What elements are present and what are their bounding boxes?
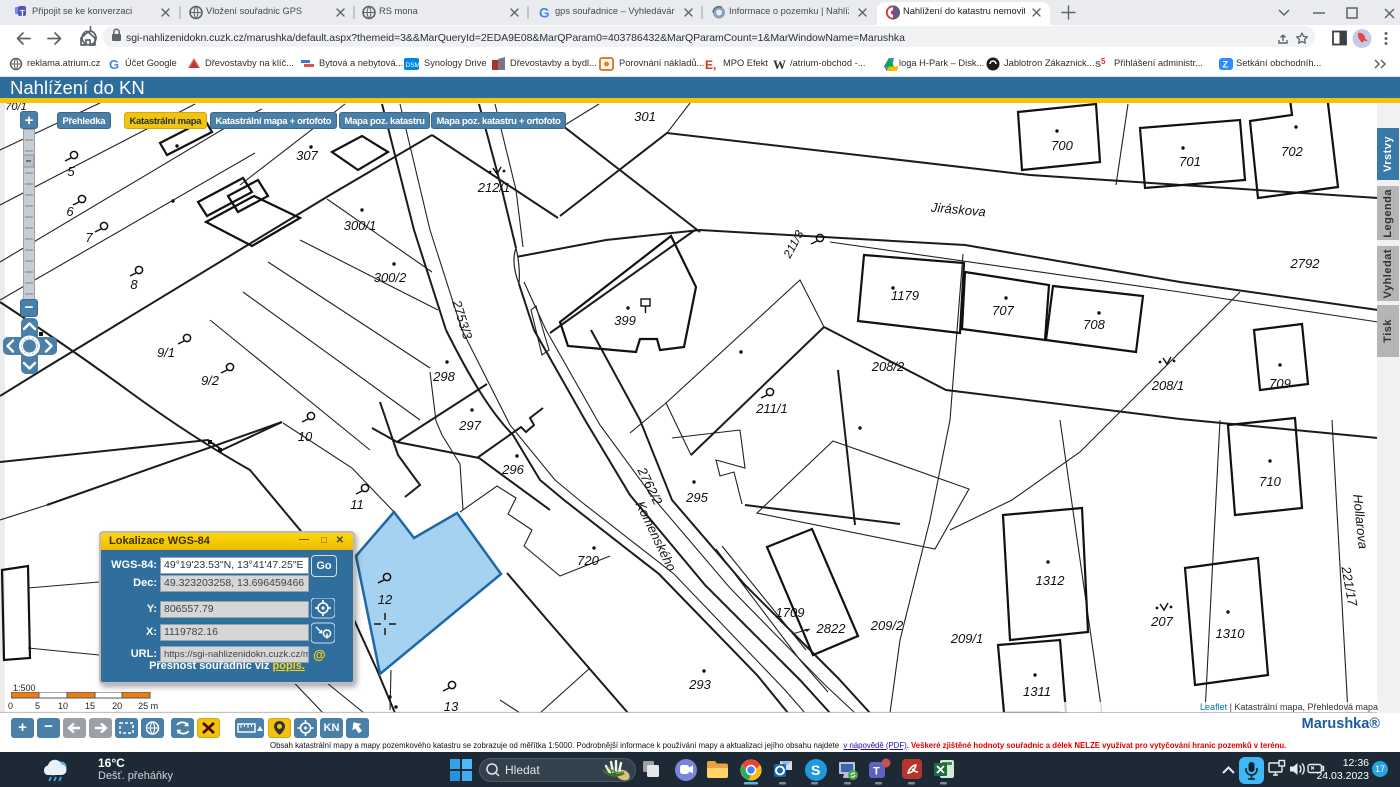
svg-text:6: 6 [66,204,74,219]
svg-text:T: T [20,9,25,18]
svg-text:5: 5 [67,164,75,179]
svg-text:293: 293 [688,677,711,692]
svg-text:307: 307 [296,148,318,163]
svg-text:13: 13 [444,699,459,713]
svg-text:209/2: 209/2 [870,618,904,633]
svg-text:1312: 1312 [1036,573,1066,588]
svg-text:1310: 1310 [1216,626,1246,641]
svg-text:707: 707 [992,303,1014,318]
svg-text:301: 301 [634,109,656,124]
svg-text:Z: Z [1223,60,1229,70]
svg-text:T: T [873,766,880,778]
svg-text:709: 709 [1269,376,1291,391]
svg-text:296: 296 [501,462,524,477]
svg-text:2822: 2822 [816,621,847,636]
svg-text:708: 708 [1083,317,1105,332]
svg-text:1179: 1179 [891,288,919,303]
svg-text:207: 207 [1150,614,1173,629]
svg-text:295: 295 [685,490,708,505]
svg-text:S: S [811,762,820,778]
svg-text:12: 12 [378,592,393,607]
svg-text:300/1: 300/1 [344,218,377,233]
svg-text:G: G [109,57,119,72]
svg-text:209/1: 209/1 [950,631,984,646]
svg-text:720: 720 [577,553,599,568]
svg-text:11: 11 [350,497,364,512]
svg-text:300/2: 300/2 [374,270,407,285]
svg-text:7: 7 [85,230,93,245]
svg-text:10: 10 [298,429,313,444]
svg-text:G: G [539,6,550,21]
svg-text:399: 399 [614,313,636,328]
svg-text:5: 5 [1101,57,1106,66]
svg-text:1311: 1311 [1023,684,1051,699]
svg-text:298: 298 [432,369,455,384]
svg-text:DSM: DSM [406,62,420,69]
svg-text:8: 8 [130,277,138,292]
svg-text:E,: E, [705,58,716,72]
svg-text:700: 700 [1051,138,1073,153]
svg-text:9/1: 9/1 [157,345,175,360]
svg-text:297: 297 [458,418,481,433]
svg-text:701: 701 [1179,154,1201,169]
svg-text:1709: 1709 [776,605,805,620]
svg-text:208/2: 208/2 [871,359,905,374]
svg-text:208/1: 208/1 [1151,378,1185,393]
svg-text:710: 710 [1259,474,1281,489]
svg-text:702: 702 [1281,144,1303,159]
svg-text:2792: 2792 [1290,256,1321,271]
svg-text:211/1: 211/1 [755,401,788,416]
svg-text:W: W [773,57,786,72]
svg-text:212/1: 212/1 [477,180,511,195]
svg-text:9/2: 9/2 [201,373,220,388]
